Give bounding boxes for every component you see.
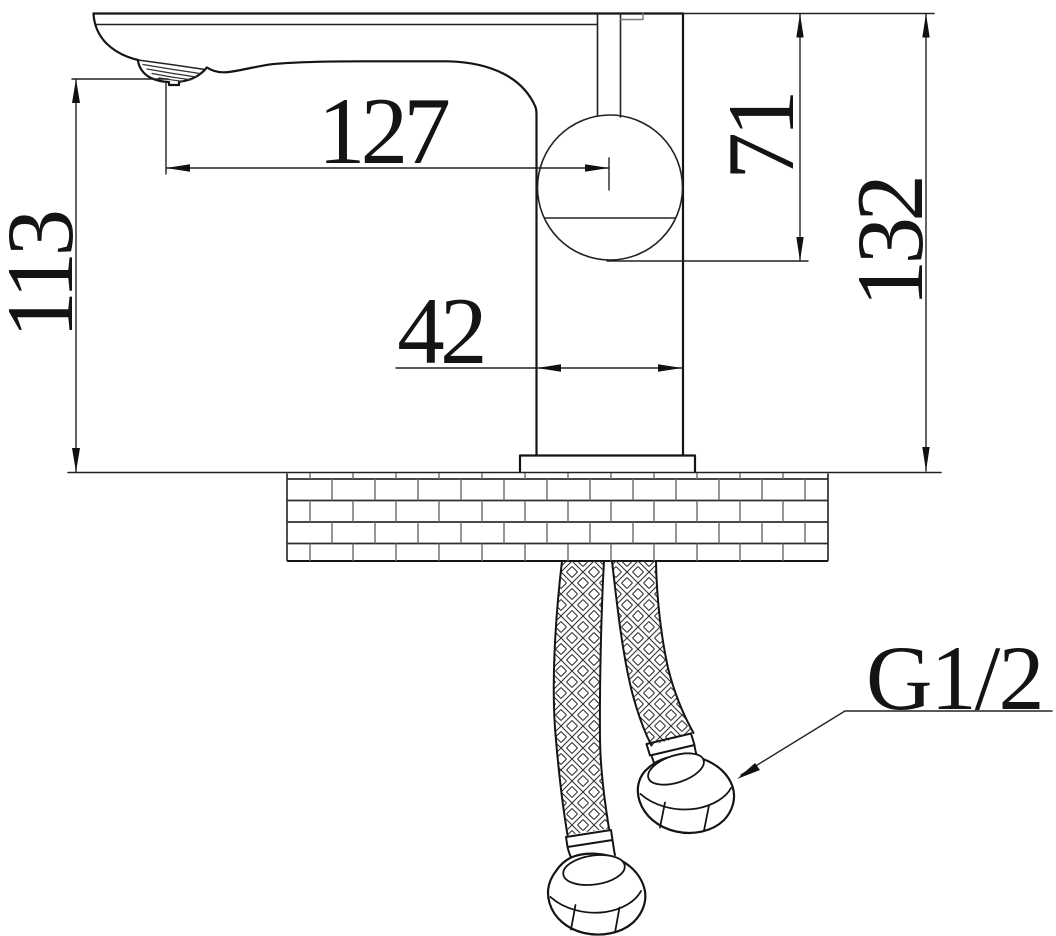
hex-nut-left xyxy=(548,851,645,934)
countertop-brick-section xyxy=(287,473,828,561)
dim-113-arrow-up xyxy=(72,79,80,103)
supply-hose-left xyxy=(554,561,615,860)
dimension-127: 127 xyxy=(166,78,609,184)
handle-knob xyxy=(538,115,683,260)
drawing-canvas: 113 127 42 71 132 G1/2 xyxy=(0,0,1056,936)
dim-132-label: 132 xyxy=(837,179,943,308)
faucet-technical-drawing: 113 127 42 71 132 G1/2 xyxy=(0,0,1056,936)
countertop xyxy=(68,473,941,562)
dim-71-label: 71 xyxy=(708,94,814,180)
aerator-top-edge xyxy=(138,60,205,70)
dimension-113: 113 xyxy=(0,79,168,472)
dim-132-arrow-up xyxy=(922,14,929,38)
dim-113-label: 113 xyxy=(0,212,93,338)
spout-end-curve xyxy=(94,14,139,61)
handle-stem xyxy=(598,14,644,118)
dim-42-arrow-left xyxy=(537,364,561,371)
dimension-71: 71 xyxy=(607,14,814,262)
dimension-42: 42 xyxy=(396,278,682,384)
supply-hose-right xyxy=(612,561,699,769)
thread-label: G1/2 xyxy=(866,627,1043,729)
dim-42-arrow-right xyxy=(658,364,682,371)
dim-127-label: 127 xyxy=(318,78,449,184)
knob-circle xyxy=(538,115,683,260)
thread-leader-arrow xyxy=(737,763,760,779)
dimension-132: 132 xyxy=(683,14,943,472)
stem-edges xyxy=(598,14,621,118)
dim-42-label: 42 xyxy=(397,278,483,384)
spout-aerator xyxy=(138,60,207,85)
dim-132-arrow-down xyxy=(922,447,929,471)
thread-callout-g12: G1/2 xyxy=(737,627,1052,779)
base-plate xyxy=(520,456,695,472)
base-plate-outline xyxy=(520,456,695,472)
dim-127-arrow-left xyxy=(166,164,190,171)
dim-113-arrow-down xyxy=(72,448,80,472)
dim-71-arrow-down xyxy=(796,237,803,261)
dim-71-arrow-up xyxy=(796,14,803,38)
dim-127-arrow-right xyxy=(585,164,609,171)
